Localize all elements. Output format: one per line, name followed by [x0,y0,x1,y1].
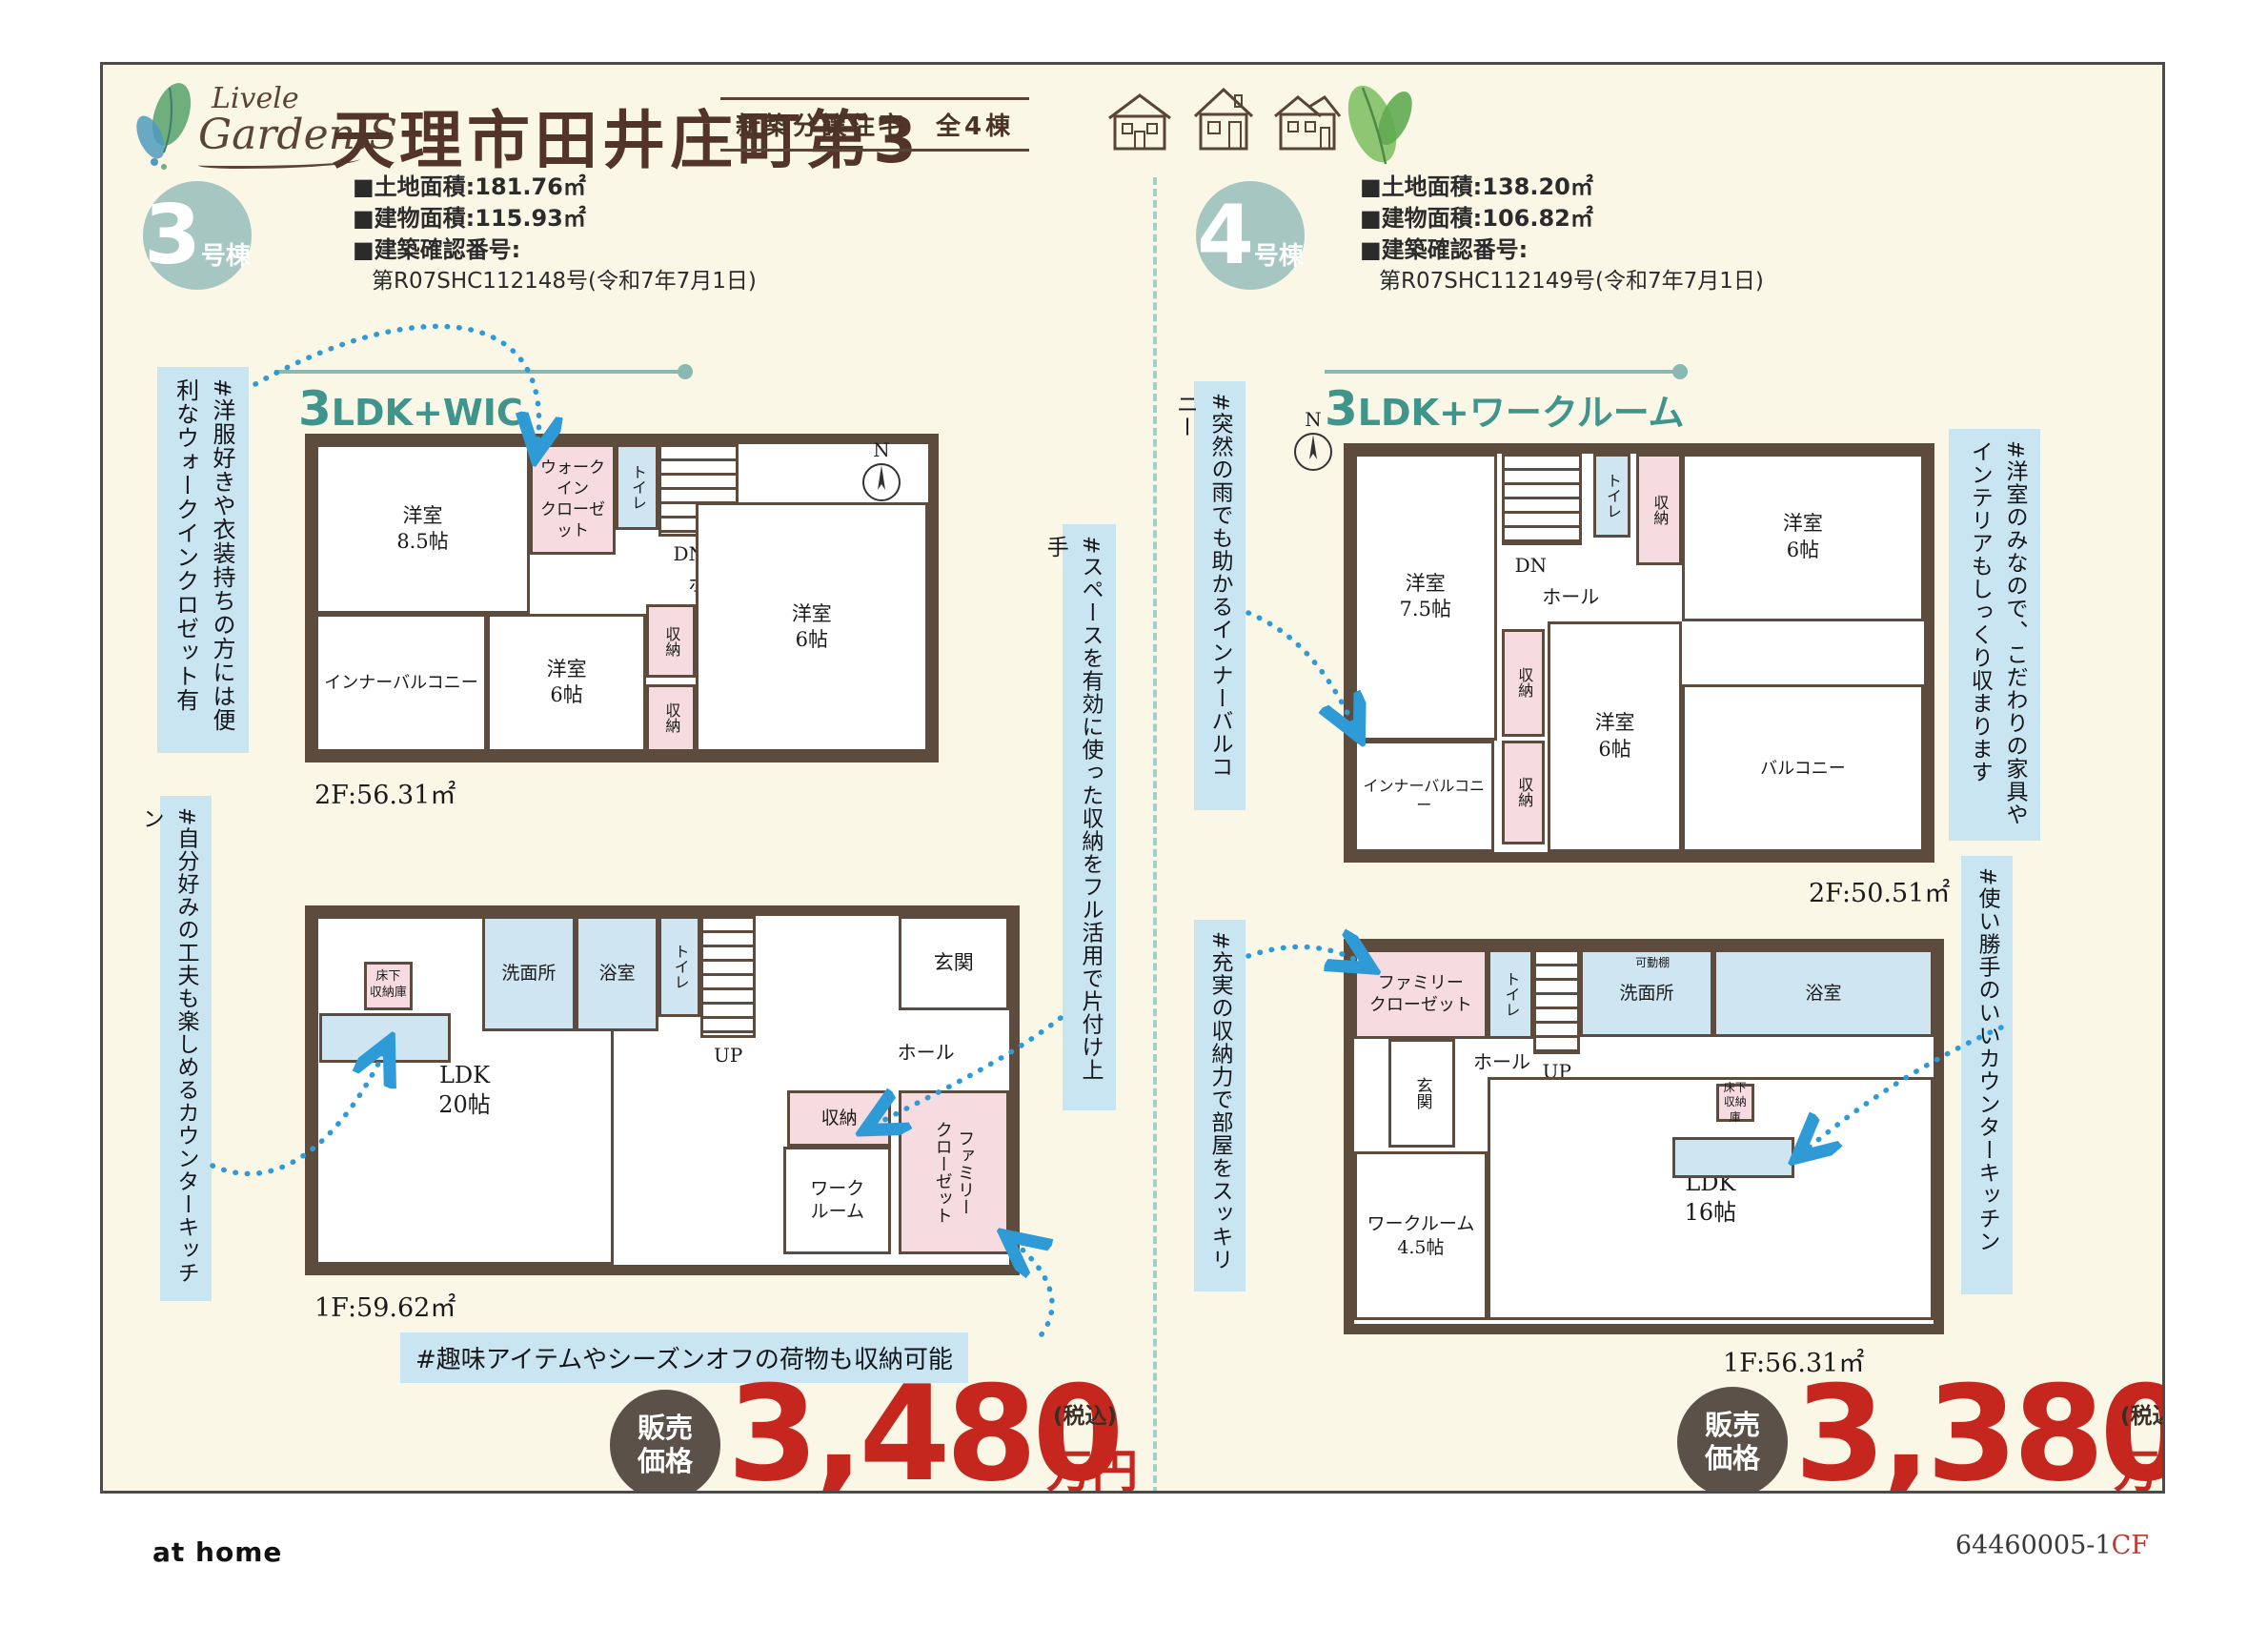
stairs-dn-label: DN [1502,549,1559,580]
room-bedroom-6-mid: 洋室 6帖 [1548,621,1682,852]
room-label: トイレ [670,944,690,989]
room-label: 浴室 [599,962,636,986]
room-label: ホール [1542,585,1599,608]
compass-n-label: N [861,438,902,461]
room-storage-mid: 収納 [1502,629,1545,737]
room-workroom: ワークルーム 4.5帖 [1354,1151,1488,1320]
room-label: 洋室 6帖 [792,601,832,654]
area-label-h4-2f: 2F:50.51㎡ [1809,872,1950,909]
layout-type-3: 3LDK+WIC [298,385,523,433]
room-bath: 浴室 [1713,949,1934,1037]
room-label: 収納 [821,1107,858,1130]
room-label: インナーバルコニー [1357,777,1491,817]
spec-permit-label-3: ■建築確認番号: [353,234,757,266]
price-unit-3: 万円 [1046,1433,1138,1494]
room-label: 収納 [1650,495,1670,525]
room-label: トイレ [627,464,647,510]
layout-type-4-text: LDK+ワークルーム [1358,392,1685,434]
room-label: 収納 [661,626,681,657]
spec-building-area-4: ■建物面積:106.82㎡ [1360,203,1764,234]
room-label: トイレ [1602,473,1622,518]
room-label: ホール [1473,1050,1530,1073]
spec-land-area-4: ■土地面積:138.20㎡ [1360,172,1764,203]
area-label-h3-1f: 1F:59.62㎡ [314,1287,456,1324]
room-label: LDK 20帖 [438,1061,491,1120]
room-label: インナーバルコニー [324,672,477,694]
price-tax-4: (税込) [2120,1397,2165,1430]
compass-icon [861,461,902,503]
room-label: 洋室 6帖 [1783,511,1823,563]
room-inner-balcony: インナーバルコニー [315,614,487,752]
layout-type-3-number: 3 [298,381,332,437]
area-label-h3-2f: 2F:56.31㎡ [314,774,456,811]
accent-dot-4 [1672,364,1688,379]
room-label: 洋室 6帖 [547,657,587,709]
stairs-up-label: UP [700,1042,756,1069]
compass-house4: N [1292,408,1334,478]
spec-permit-number-3: 第R07SHC112148号(令和7年7月1日) [353,266,757,297]
stairs-down [1502,454,1582,545]
room-storage-2: 収納 [646,684,695,752]
room-toilet: トイレ [616,444,658,530]
room-label: ホール [898,1041,955,1064]
room-label: ファミリー クローゼット [1369,972,1472,1017]
flyer-page: Livele Garden.S 天理市田井庄町第3 新築分譲住宅 全4棟 3 号… [100,62,2165,1494]
room-balcony: バルコニー [1682,684,1924,852]
tag-h4-right-top: #洋室のみなので、こだわりの家具やインテリアもしっくり収まります [1949,429,2040,841]
room-inner-balcony: インナーバルコニー [1354,741,1494,852]
room-bath: 浴室 [576,916,658,1031]
room-underfloor-storage: 床下 収納庫 [1716,1084,1754,1121]
room-label: 洗面所 [1620,982,1674,1006]
tag-h4-right-bottom: #使い勝手のいいカウンターキッチン [1961,856,2013,1294]
hall-label: ホール [870,1038,981,1066]
floorplan-h4-2f: 洋室 7.5帖 DN ホール トイレ 収納 洋室 6帖 収納 洋室 6帖 収納 … [1344,443,1934,863]
accent-line-3 [274,370,684,374]
room-label: バルコニー [1760,758,1846,780]
leaf-decoration-right [1338,76,1424,175]
room-entrance: 玄関 [1388,1039,1455,1148]
athome-logo: at home [152,1536,282,1568]
tag-h3-left-top: #洋服好きや衣装持ちの方には便利なウォークインクロゼット有 [157,367,249,753]
unit-badge-3: 3 号棟 [143,181,252,290]
leaf-decoration-left [122,78,202,172]
hall-label: ホール [1452,1047,1550,1076]
room-underfloor-storage: 床下 収納庫 [364,962,413,1010]
room-label: 洋室 6帖 [1595,710,1635,762]
tag-h4-left-top: #突然の雨でも助かるインナーバルコニー [1194,381,1245,810]
house-icon-3 [1271,90,1344,152]
arrow-to-inner-balcony-h4 [1248,613,1357,732]
hall-label: ホール [1530,581,1610,613]
room-label: 収納 [1513,777,1533,807]
compass-n-label: N [1292,408,1334,431]
accent-line-4 [1325,370,1679,374]
room-label: UP [714,1044,742,1067]
price-tax-3: (税込) [1053,1397,1117,1430]
room-label: 収納 [1513,667,1533,698]
stairs-up [700,916,756,1038]
room-label: 床下 収納庫 [370,969,407,1002]
house-icon-1 [1104,90,1176,152]
movable-shelf-label: 可動棚 [1621,951,1685,974]
room-label: ワーク ルーム [810,1177,864,1224]
room-label: ファミリー クローゼット [931,1121,976,1224]
room-storage-1: 収納 [646,604,695,679]
document-code-suffix: CF [2112,1531,2149,1560]
room-bedroom-6-mid: 洋室 6帖 [487,614,646,752]
tag-h4-left-bottom: #充実の収納力で部屋をスッキリ [1194,920,1245,1291]
specs-house3: ■土地面積:181.76㎡ ■建物面積:115.93㎡ ■建築確認番号: 第R0… [353,172,757,297]
sale-type-badge: 新築分譲住宅 全4棟 [720,97,1029,152]
room-label: ウォークイン クローゼット [533,457,613,541]
spec-land-area-3: ■土地面積:181.76㎡ [353,172,757,203]
room-label: 収納 [661,702,681,733]
room-label: DN [1515,554,1548,577]
document-code-number: 64460005-1 [1955,1531,2112,1560]
tag-h3-right: #スペースを有効に使った収納をフル活用で片付け上手 [1063,524,1116,1110]
compass-icon [1292,431,1334,473]
room-label: 玄関 [1411,1077,1432,1109]
room-ldk: LDK 16帖 [1488,1077,1934,1320]
document-code: 64460005-1CF [1955,1531,2149,1560]
layout-type-4: 3LDK+ワークルーム [1325,385,1685,433]
unit-number-3: 3 [144,194,201,276]
room-label: 玄関 [934,950,974,976]
kitchen-counter [1672,1137,1794,1178]
room-family-closet: ファミリー クローゼット [899,1090,1009,1254]
floorplan-h3-1f: LDK 20帖 床下 収納庫 洗面所 浴室 トイレ UP ホール 玄関 収納 ワ… [305,905,1020,1275]
room-storage-bottom: 収納 [1502,741,1545,844]
room-bedroom-6-topright: 洋室 6帖 [1682,454,1924,621]
room-walk-in-closet: ウォークイン クローゼット [530,444,616,555]
room-label: トイレ [1501,971,1521,1017]
unit-suffix-3: 号棟 [201,236,251,272]
accent-dot-3 [678,364,693,379]
price-label-4: 販売 価格 [1677,1387,1788,1494]
room-toilet: トイレ [658,916,700,1017]
price-unit-4: 万円 [2114,1433,2165,1494]
spec-permit-number-4: 第R07SHC112149号(令和7年7月1日) [1360,266,1764,297]
specs-house4: ■土地面積:138.20㎡ ■建物面積:106.82㎡ ■建築確認番号: 第R0… [1360,172,1764,297]
room-label: 浴室 [1805,982,1841,1006]
room-label: 可動棚 [1635,956,1670,969]
price-amount-4: 3,380 [1794,1369,2165,1494]
floorplan-h4-1f: ファミリー クローゼット トイレ UP 洗面所 可動棚 浴室 ホール 玄関 ワー… [1344,939,1944,1334]
spec-building-area-3: ■建物面積:115.93㎡ [353,203,757,234]
layout-type-3-text: LDK+WIC [332,392,523,434]
room-label: 洋室 7.5帖 [1400,571,1451,623]
unit-number-4: 4 [1197,194,1254,276]
price-label-3: 販売 価格 [610,1390,720,1494]
room-entrance: 玄関 [899,916,1009,1010]
room-bedroom-7-5: 洋室 7.5帖 [1354,454,1497,741]
room-storage: 収納 [787,1090,891,1147]
room-toilet: トイレ [1593,454,1630,538]
floorplan-h3-2f: 洋室 8.5帖 ウォークイン クローゼット トイレ DN ホール インナーバルコ… [305,434,939,762]
kitchen-counter [319,1013,451,1062]
room-label: ワークルーム 4.5帖 [1367,1212,1474,1259]
room-storage-top: 収納 [1636,454,1682,565]
room-bedroom-6-right: 洋室 6帖 [696,502,928,752]
stairs-up [1533,949,1580,1054]
room-family-closet: ファミリー クローゼット [1354,949,1488,1039]
compass-house3: N [861,438,902,508]
spec-permit-label-4: ■建築確認番号: [1360,234,1764,266]
unit-suffix-4: 号棟 [1254,236,1304,272]
room-washroom: 洗面所 [482,916,576,1031]
unit-badge-4: 4 号棟 [1196,181,1305,290]
tag-h3-left-bottom: #自分好みの工夫も楽しめるカウンターキッチン [160,796,212,1301]
house-icon-2 [1187,86,1260,152]
room-bedroom-8-5: 洋室 8.5帖 [315,444,530,614]
room-label: 洋室 8.5帖 [396,503,448,556]
room-label: 洗面所 [501,962,556,986]
section-divider [1153,177,1157,1494]
room-toilet: トイレ [1488,949,1534,1039]
room-label: 床下 収納庫 [1719,1081,1752,1126]
room-workroom: ワーク ルーム [783,1147,891,1254]
